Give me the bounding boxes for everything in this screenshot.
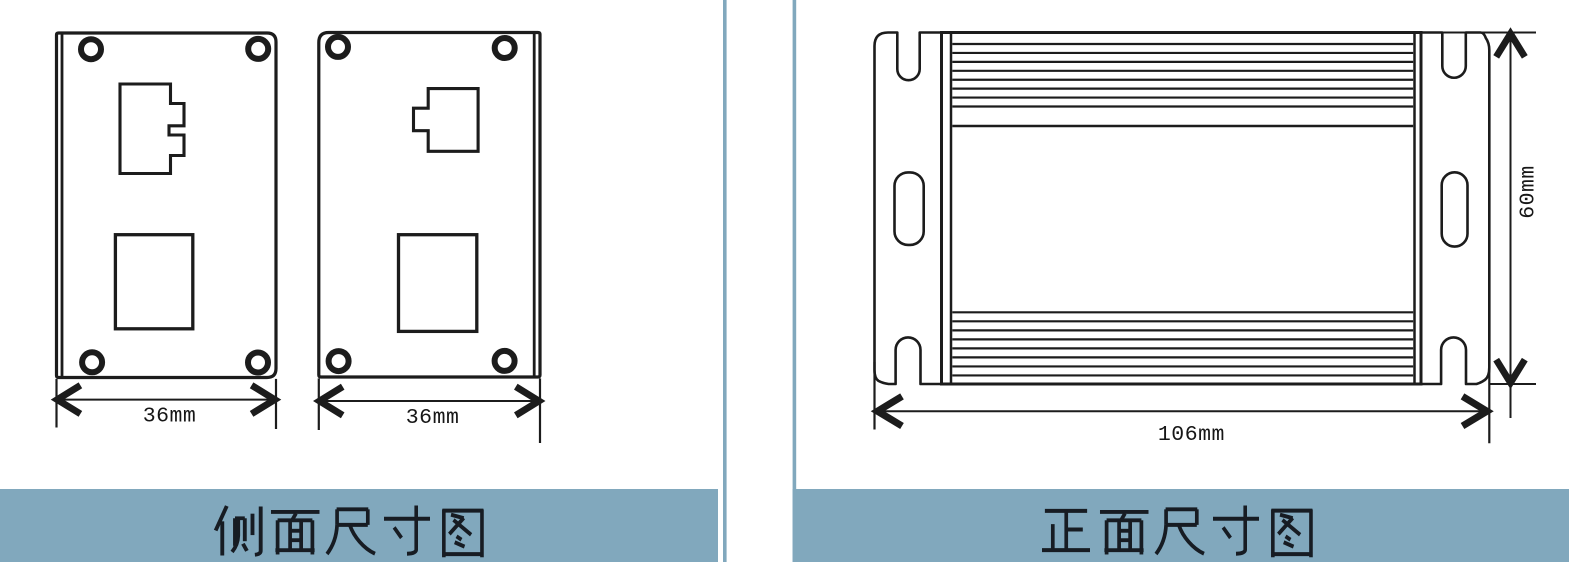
svg-text:106mm: 106mm	[1158, 423, 1225, 447]
svg-text:36mm: 36mm	[406, 406, 460, 430]
svg-text:60mm: 60mm	[1517, 165, 1541, 219]
svg-text:36mm: 36mm	[143, 405, 197, 429]
